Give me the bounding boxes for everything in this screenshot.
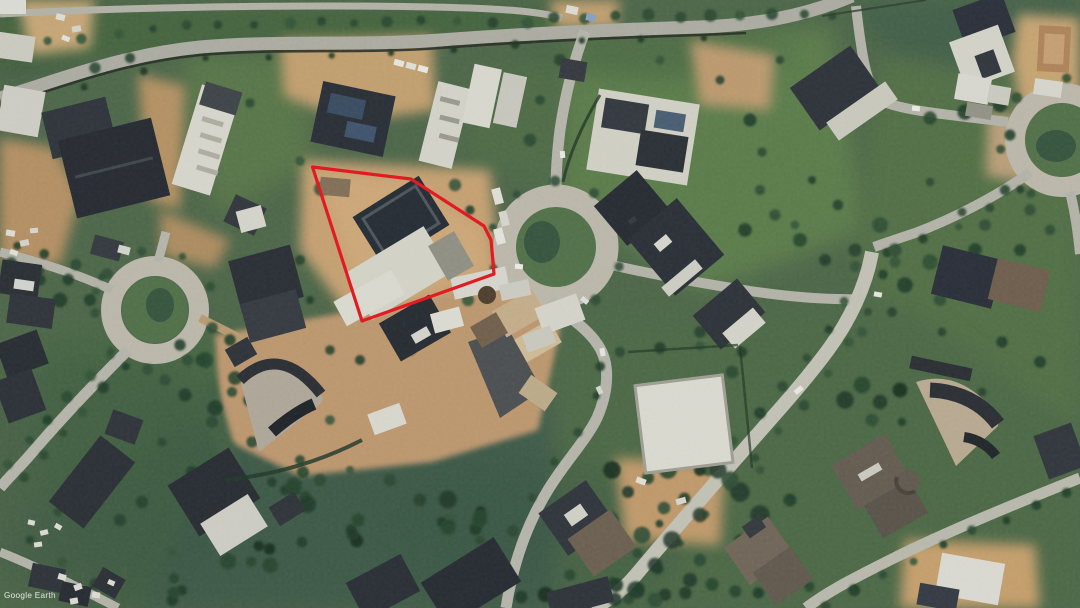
svg-text:Google Earth: Google Earth — [4, 591, 56, 600]
